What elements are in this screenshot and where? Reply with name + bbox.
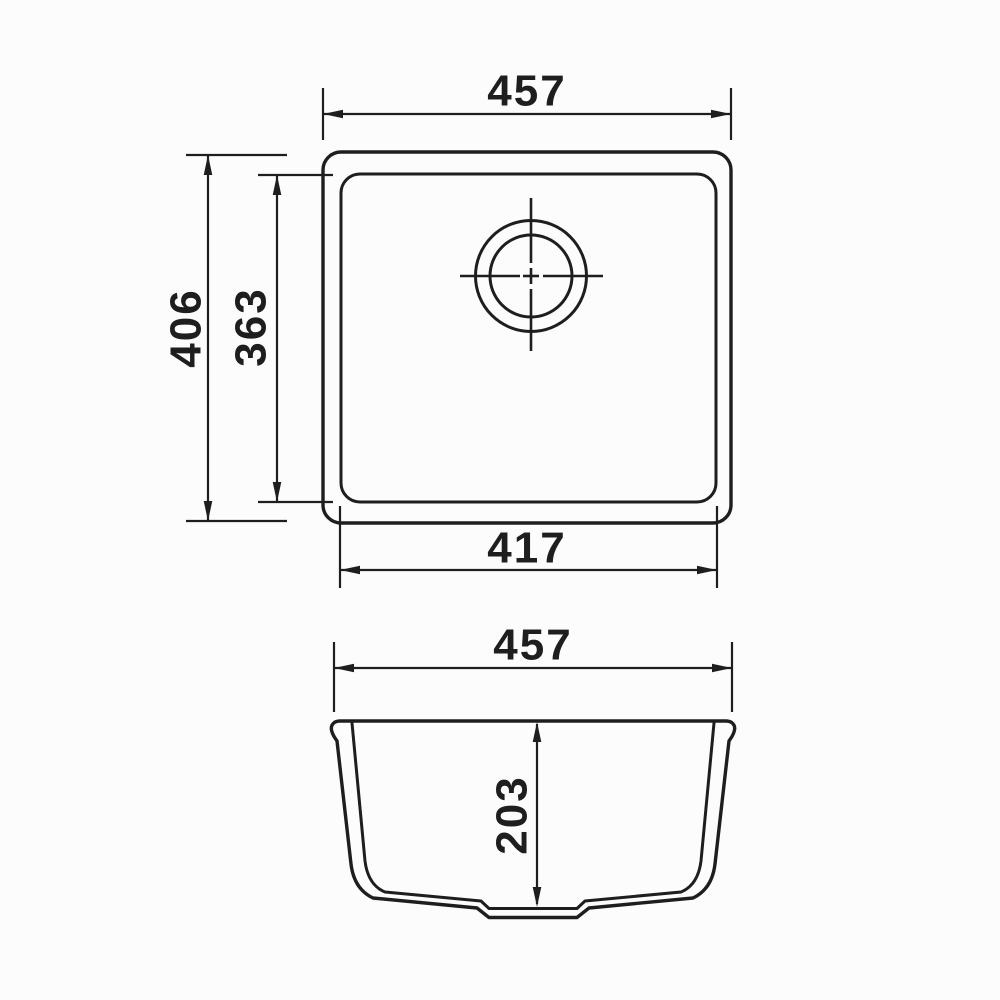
arrowhead-right bbox=[712, 664, 732, 673]
dimension-value: 417 bbox=[487, 524, 566, 573]
dim-bowl-depth-plan: 363 bbox=[227, 175, 334, 502]
sink-outer-rim bbox=[323, 152, 731, 523]
sink-bowl bbox=[341, 174, 716, 502]
arrowhead-up bbox=[533, 722, 542, 742]
drain bbox=[460, 198, 603, 351]
dim-bowl-width: 417 bbox=[340, 506, 717, 588]
arrowhead-left bbox=[334, 664, 354, 673]
dim-section-width: 457 bbox=[334, 621, 732, 713]
arrowhead-up bbox=[204, 155, 213, 175]
arrowhead-left bbox=[323, 110, 343, 119]
dimension-value: 457 bbox=[493, 621, 572, 670]
arrowhead-down bbox=[273, 482, 282, 502]
technical-drawing: 457 406 363 417 457 bbox=[0, 0, 1000, 1000]
dimension-value: 457 bbox=[487, 67, 566, 116]
dim-top-overall-width: 457 bbox=[323, 67, 731, 141]
arrowhead-down bbox=[533, 887, 542, 907]
arrowhead-right bbox=[711, 110, 731, 119]
dimension-value: 363 bbox=[227, 287, 276, 366]
dimension-value: 203 bbox=[488, 775, 537, 854]
top-view bbox=[323, 152, 731, 523]
dimension-value: 406 bbox=[162, 288, 211, 367]
arrowhead-left bbox=[340, 566, 360, 575]
arrowhead-right bbox=[697, 566, 717, 575]
arrowhead-down bbox=[204, 501, 213, 521]
dim-section-depth: 203 bbox=[488, 722, 542, 907]
arrowhead-up bbox=[273, 175, 282, 195]
drawing-canvas: 457 406 363 417 457 bbox=[0, 0, 1000, 1000]
